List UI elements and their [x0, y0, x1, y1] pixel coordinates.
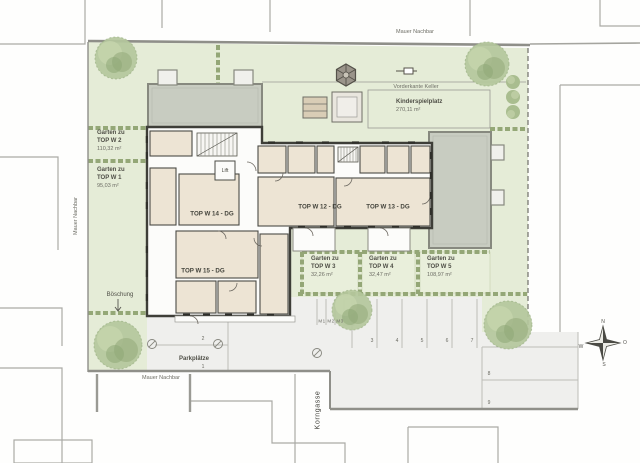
stall-number: 7: [471, 338, 474, 344]
garden-prefix: Garten zu: [311, 256, 339, 264]
garden-prefix: Garten zu: [97, 130, 125, 138]
compass-south-label: S: [602, 362, 605, 368]
garden-label-w3: Garten zu TOP W 3 32,26 m²: [311, 256, 339, 280]
garden-area: 95,03 m²: [97, 183, 125, 191]
stall-number: 1: [202, 364, 205, 370]
garden-name: TOP W 4: [369, 264, 397, 272]
play-structure-icon: [337, 64, 356, 86]
tree: [332, 290, 372, 330]
garden-prefix: Garten zu: [97, 167, 125, 175]
garden-name: TOP W 3: [311, 264, 339, 272]
tree: [94, 321, 142, 369]
stall-number: 6: [446, 338, 449, 344]
stall-number: 5: [421, 338, 424, 344]
bench: [303, 97, 327, 118]
stall-number: 3: [371, 338, 374, 344]
compass-east-label: O: [623, 340, 627, 346]
playground-label: Kinderspielplatz 270,11 m²: [396, 99, 442, 115]
compass-rose-icon: [586, 326, 620, 360]
compass-west-label: W: [579, 344, 584, 350]
stall-number: 2: [202, 336, 205, 342]
compass-north-label: N: [601, 319, 605, 325]
stall-number: 9: [488, 400, 491, 406]
wall-label-bottom: Mauer Nachbar: [142, 375, 180, 381]
bush: [506, 105, 520, 119]
garden-label-w5: Garten zu TOP W 5 108,97 m²: [427, 256, 455, 280]
garden-area: 108,97 m²: [427, 272, 455, 280]
moto-stalls-label: M1 M2 M3: [318, 319, 343, 324]
tree: [95, 37, 137, 79]
garden-area: 110,32 m²: [97, 146, 125, 154]
garden-area: 32,47 m²: [369, 272, 397, 280]
site-plan: Mauer Nachbar Mauer Nachbar Mauer Nachba…: [0, 0, 640, 463]
stall-number: 4: [396, 338, 399, 344]
garden-name: TOP W 5: [427, 264, 455, 272]
garden-label-w1: Garten zu TOP W 1 95,03 m²: [97, 167, 125, 191]
garden-label-w2: Garten zu TOP W 2 110,32 m²: [97, 130, 125, 154]
tree: [484, 301, 532, 349]
stall-number: 8: [488, 371, 491, 377]
garden-area: 32,26 m²: [311, 272, 339, 280]
playground-area: 270,11 m²: [396, 107, 442, 115]
slope-label: Böschung: [107, 292, 134, 298]
street-label-korngasse: Korngasse: [315, 391, 322, 430]
lift-label: Lift: [222, 168, 229, 174]
wall-label-left: Mauer Nachbar: [73, 197, 79, 235]
unit-label-w15: TOP W 15 - DG: [181, 268, 224, 275]
parking-title: Parkplätze: [179, 356, 209, 362]
garden-label-w4: Garten zu TOP W 4 32,47 m²: [369, 256, 397, 280]
unit-label-w14: TOP W 14 - DG: [190, 211, 233, 218]
garden-prefix: Garten zu: [369, 256, 397, 264]
unit-label-w12: TOP W 12 - DG: [298, 204, 341, 211]
garden-prefix: Garten zu: [427, 256, 455, 264]
bush: [506, 75, 520, 89]
basement-edge-label: Vorderkante Keller: [393, 84, 438, 90]
bush: [506, 90, 520, 104]
garden-name: TOP W 2: [97, 138, 125, 146]
wall-label-top: Mauer Nachbar: [396, 29, 434, 35]
unit-label-w13: TOP W 13 - DG: [366, 204, 409, 211]
playground-name: Kinderspielplatz: [396, 99, 442, 107]
garden-name: TOP W 1: [97, 175, 125, 183]
tree: [465, 42, 509, 86]
